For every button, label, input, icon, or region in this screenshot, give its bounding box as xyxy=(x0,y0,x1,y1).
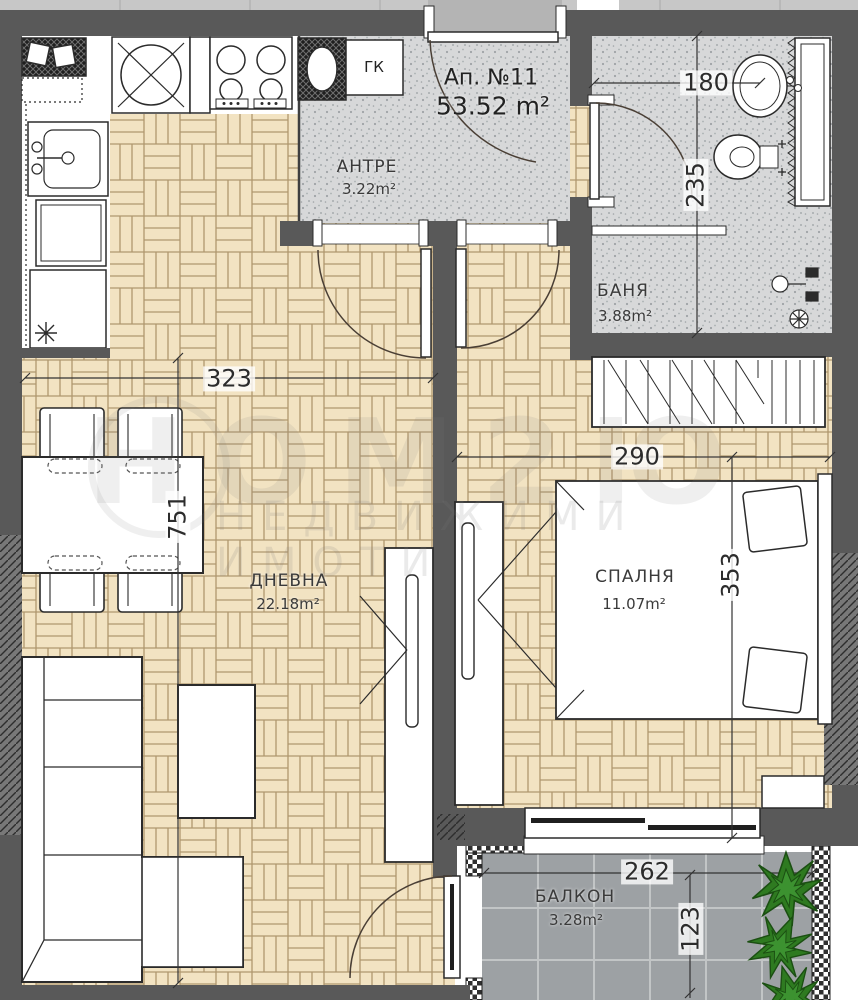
tv-icon xyxy=(462,523,474,679)
entrance-door xyxy=(428,32,558,42)
dim-balcony-depth: 123 xyxy=(678,903,703,955)
pillow xyxy=(743,486,808,553)
room-area-dnevna: 22.18m² xyxy=(256,595,320,613)
room-area-spalnya: 11.07m² xyxy=(602,595,666,613)
room-label-antre: АНТРЕ xyxy=(337,157,398,177)
pillow xyxy=(743,647,808,714)
room-label-balkon: БАЛКОН xyxy=(535,887,615,907)
bedside-table xyxy=(762,776,824,808)
apartment-title: Ап. №11 xyxy=(444,66,538,91)
dim-bedroom-length: 353 xyxy=(718,549,743,601)
sofa-chaise xyxy=(142,857,243,967)
room-area-antre: 3.22m² xyxy=(342,180,396,198)
kitchen-sink-counter xyxy=(298,38,346,100)
round-appliance-icon xyxy=(112,37,190,113)
floor-plan: НОМ2Ю НЕДВИЖИМИ ИМОТИ Ап. №11 53.52 m² Г… xyxy=(0,0,858,1000)
wardrobe xyxy=(592,357,825,427)
dim-balcony-width: 262 xyxy=(621,859,673,884)
dim-living-width: 323 xyxy=(203,366,255,391)
coffee-table xyxy=(178,685,255,818)
freezer-icon xyxy=(30,270,106,348)
shower-glass-partition xyxy=(592,226,726,235)
balcony-railing xyxy=(812,846,830,1000)
fridge-icon xyxy=(36,200,106,266)
cooktop-icon xyxy=(210,37,292,109)
closet-label: ГК xyxy=(364,58,384,76)
room-label-banya: БАНЯ xyxy=(597,281,649,301)
apartment-total-area: 53.52 m² xyxy=(436,92,550,121)
bed xyxy=(556,474,832,724)
dim-living-length: 751 xyxy=(165,491,190,543)
dim-bedroom-width: 290 xyxy=(611,444,663,469)
headboard xyxy=(818,474,832,724)
sliding-door xyxy=(524,808,764,854)
tv-icon xyxy=(406,575,418,727)
kitchen-sink-unit xyxy=(28,122,108,196)
room-label-dnevna: ДНЕВНА xyxy=(250,571,329,591)
dim-bath-width: 180 xyxy=(680,70,732,95)
room-area-balkon: 3.28m² xyxy=(549,911,603,929)
bathroom-door xyxy=(590,103,599,199)
living-room-door xyxy=(421,249,431,357)
floor-plan-drawing xyxy=(0,0,858,1000)
room-label-spalnya: СПАЛНЯ xyxy=(595,567,675,587)
room-area-banya: 3.88m² xyxy=(598,307,652,325)
bedroom-door xyxy=(456,249,466,347)
bathtub-icon xyxy=(788,38,830,206)
dim-bath-length: 235 xyxy=(683,159,708,211)
